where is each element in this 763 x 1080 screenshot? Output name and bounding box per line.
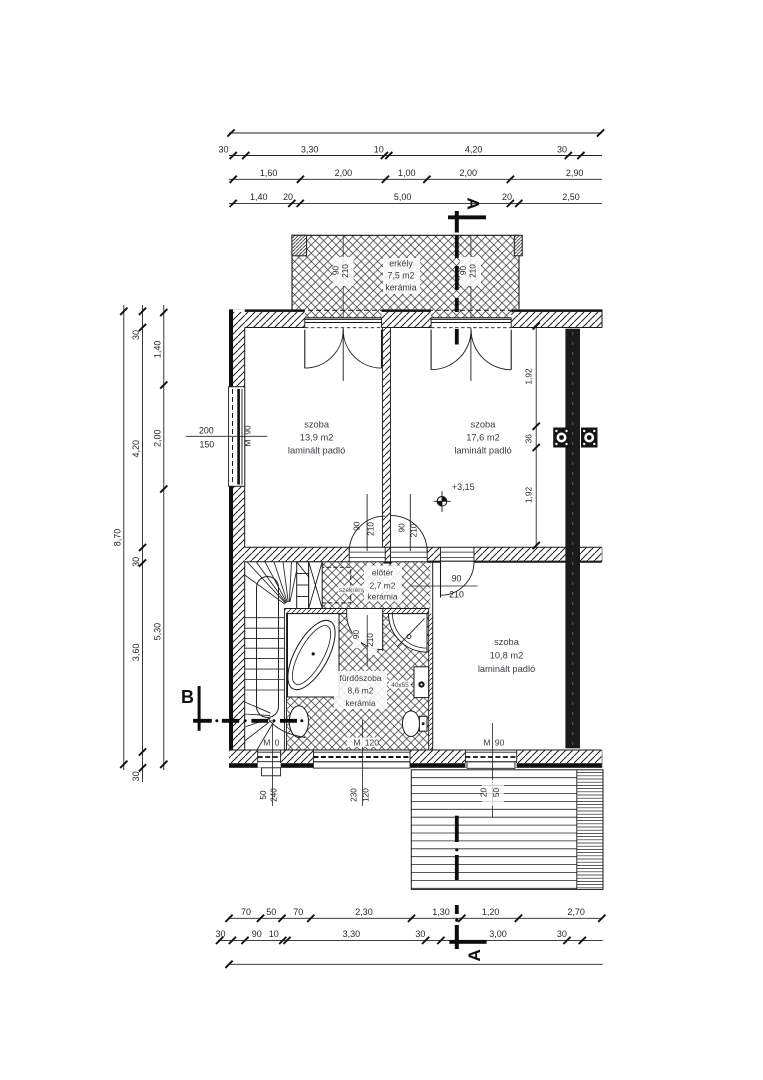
svg-text:200: 200 [199,426,214,436]
svg-text:90: 90 [495,738,505,748]
svg-text:90: 90 [458,266,468,276]
svg-text:A: A [465,949,484,961]
svg-text:30: 30 [131,557,141,567]
svg-text:7,5 m2: 7,5 m2 [388,271,415,281]
svg-text:3,00: 3,00 [489,929,507,939]
svg-text:120: 120 [365,738,380,748]
svg-text:B: B [181,687,194,707]
svg-text:0: 0 [275,738,280,748]
svg-text:150: 150 [199,439,214,449]
svg-text:fürdőszoba: fürdőszoba [339,673,381,683]
svg-text:szekrény: szekrény [339,587,366,594]
svg-text:szoba: szoba [471,420,497,430]
svg-text:előtér: előtér [372,568,393,578]
svg-text:210: 210 [340,264,350,278]
svg-text:50: 50 [258,790,268,800]
svg-text:240: 240 [269,788,279,802]
svg-text:2,90: 2,90 [566,168,584,178]
svg-text:90: 90 [452,574,462,584]
svg-text:90: 90 [351,630,361,640]
svg-text:20: 20 [502,192,512,202]
svg-text:210: 210 [365,633,375,647]
svg-text:10,8 m2: 10,8 m2 [490,651,524,661]
svg-text:2,70: 2,70 [567,907,585,917]
svg-text:2,7 m2: 2,7 m2 [370,581,396,591]
svg-text:2,00: 2,00 [335,168,353,178]
svg-text:30: 30 [557,929,567,939]
svg-text:230: 230 [348,788,358,802]
svg-text:1,00: 1,00 [398,168,416,178]
svg-text:1,92: 1,92 [523,368,533,385]
svg-text:8,70: 8,70 [113,529,123,547]
svg-text:36: 36 [523,434,533,444]
svg-text:M: M [483,738,490,748]
svg-text:210: 210 [409,523,419,537]
svg-text:1,92: 1,92 [523,487,533,504]
svg-text:17,6 m2: 17,6 m2 [466,433,500,443]
svg-text:210: 210 [467,264,477,278]
svg-text:1,30: 1,30 [432,907,450,917]
svg-text:2,50: 2,50 [562,192,580,202]
svg-text:1,60: 1,60 [260,168,278,178]
svg-text:90: 90 [330,266,340,276]
svg-text:90: 90 [252,929,262,939]
svg-text:1,20: 1,20 [482,907,500,917]
svg-text:3,60: 3,60 [131,644,141,662]
svg-text:8,6 m2: 8,6 m2 [348,686,374,696]
svg-text:30: 30 [415,929,425,939]
svg-text:M: M [263,738,270,748]
svg-text:A: A [464,197,483,209]
svg-text:M: M [353,738,360,748]
svg-text:4,20: 4,20 [465,144,483,154]
svg-text:2,00: 2,00 [460,168,478,178]
svg-text:20: 20 [283,192,293,202]
svg-text:30: 30 [557,144,567,154]
svg-text:laminált padló: laminált padló [454,446,511,456]
svg-text:M: M [242,439,252,446]
svg-text:kerámia: kerámia [345,698,376,708]
svg-text:40x55: 40x55 [391,682,409,689]
svg-text:10: 10 [374,144,384,154]
svg-text:90: 90 [396,523,406,533]
svg-text:70: 70 [241,907,251,917]
svg-text:210: 210 [449,590,464,600]
svg-text:kerámia: kerámia [385,283,416,293]
svg-text:3,30: 3,30 [301,144,319,154]
svg-text:laminált padló: laminált padló [478,664,535,674]
svg-text:5,00: 5,00 [394,192,412,202]
svg-text:30: 30 [218,144,228,154]
svg-text:13,9 m2: 13,9 m2 [300,433,334,443]
svg-text:90: 90 [352,521,362,531]
svg-text:1,40: 1,40 [250,192,268,202]
svg-text:10: 10 [269,929,279,939]
svg-text:50: 50 [491,788,501,798]
svg-text:90: 90 [242,425,252,435]
svg-text:szoba: szoba [304,420,330,430]
svg-text:4,20: 4,20 [131,440,141,458]
svg-text:2,00: 2,00 [153,429,163,447]
svg-text:szoba: szoba [494,637,520,647]
svg-text:210: 210 [366,522,376,536]
svg-text:kerámia: kerámia [367,592,398,602]
svg-text:1,40: 1,40 [153,341,163,359]
svg-text:30: 30 [131,330,141,340]
svg-text:20: 20 [478,788,488,798]
svg-text:70: 70 [293,907,303,917]
svg-text:30: 30 [215,929,225,939]
svg-text:30: 30 [131,771,141,781]
svg-text:+3,15: +3,15 [452,482,475,492]
svg-text:120: 120 [361,788,371,802]
svg-text:3,30: 3,30 [343,929,361,939]
svg-text:50: 50 [266,907,276,917]
svg-text:2,30: 2,30 [355,907,373,917]
svg-text:erkély: erkély [389,259,413,269]
svg-text:laminált padló: laminált padló [288,446,345,456]
svg-text:5,30: 5,30 [153,623,163,641]
